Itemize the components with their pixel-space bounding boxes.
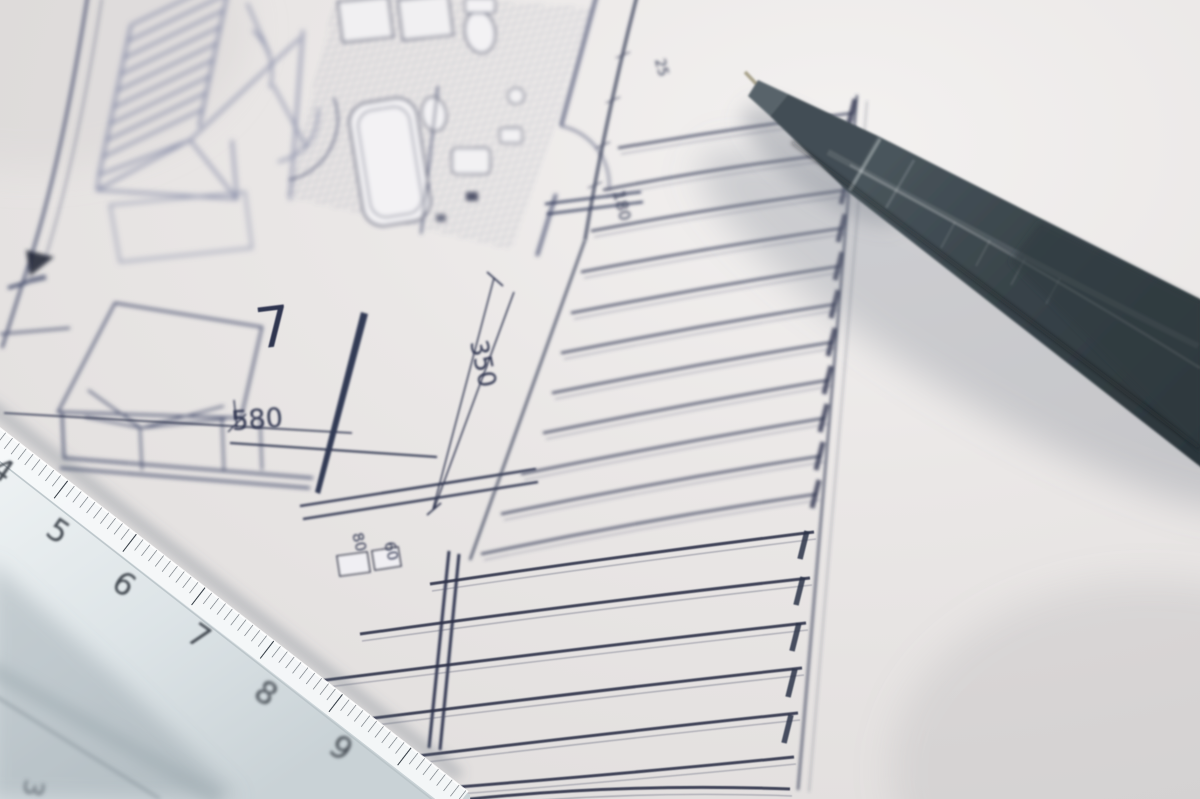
photo-floor-plan-scene: 580 7 350 80 60 xyxy=(0,0,1200,799)
scene-canvas: 580 7 350 80 60 xyxy=(0,0,1200,799)
dim-width-label: 580 xyxy=(230,402,284,437)
